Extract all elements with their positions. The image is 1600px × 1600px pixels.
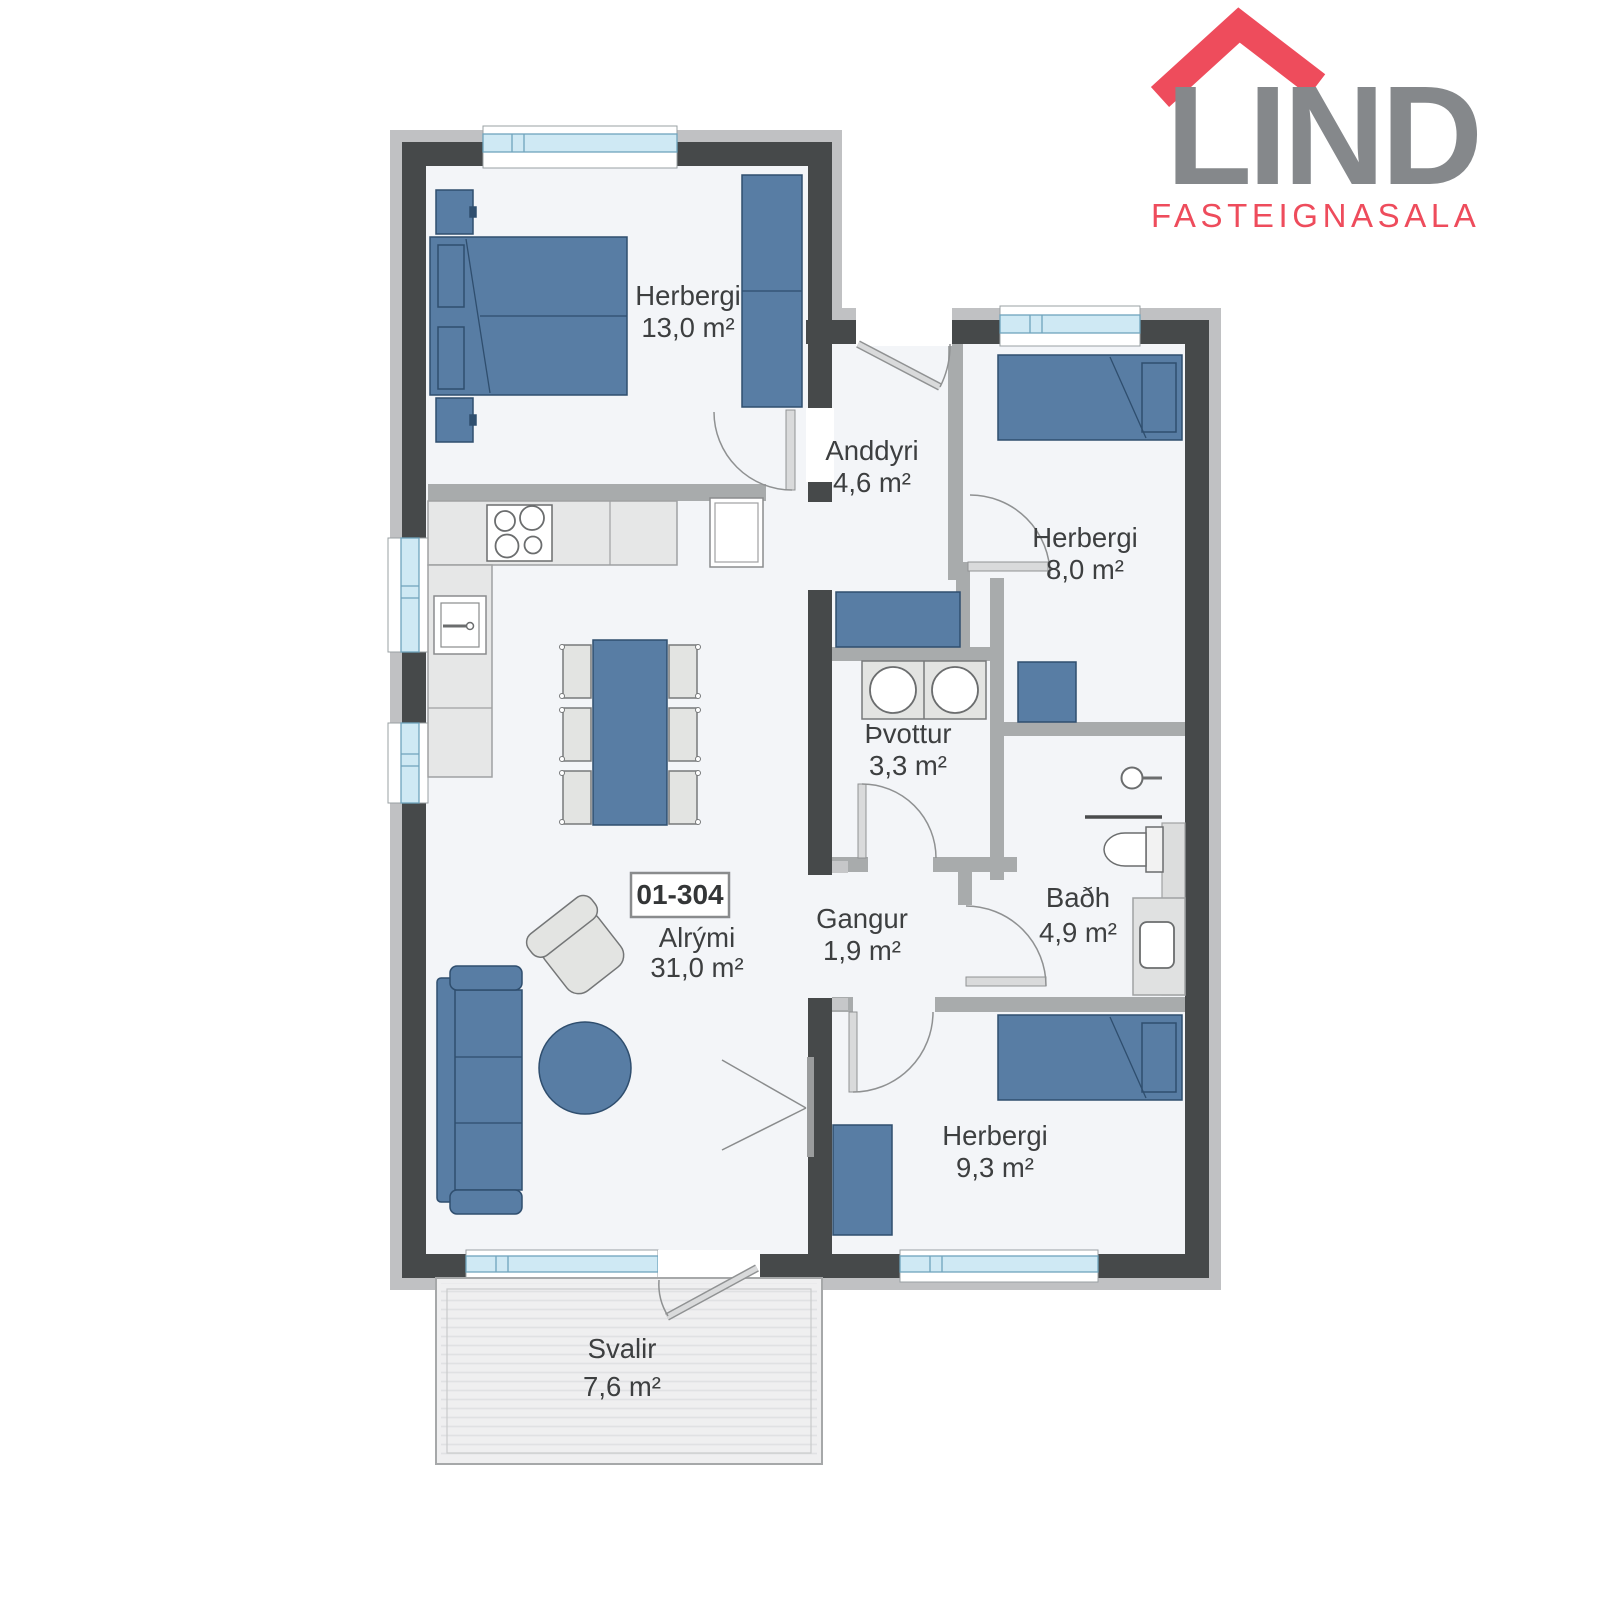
room-name: Svalir bbox=[588, 1333, 657, 1364]
room-area: 8,0 m² bbox=[1046, 554, 1124, 585]
washer-dryer bbox=[862, 661, 986, 719]
room-area: 4,6 m² bbox=[833, 467, 911, 498]
single-bed-9 bbox=[998, 1015, 1182, 1100]
room-name: Baðh bbox=[1046, 882, 1110, 913]
floor-plan-page: Herbergi 13,0 m² Anddyri 4,6 m² Herbergi… bbox=[0, 0, 1600, 1600]
room-name: Herbergi bbox=[1032, 522, 1137, 553]
room-area: 9,3 m² bbox=[956, 1152, 1034, 1183]
kitchen-sink bbox=[434, 596, 486, 654]
logo-subtitle: FASTEIGNASALA bbox=[1151, 197, 1480, 234]
room-label-herbergi-9: Herbergi 9,3 m² bbox=[942, 1120, 1047, 1183]
room-name: Alrými bbox=[659, 922, 735, 953]
room-area: 1,9 m² bbox=[823, 935, 901, 966]
window-left-2 bbox=[388, 723, 428, 803]
room-name: Herbergi bbox=[635, 280, 740, 311]
dresser-9 bbox=[833, 1125, 892, 1235]
dining-set bbox=[560, 640, 701, 825]
double-bed bbox=[430, 237, 627, 395]
stove bbox=[487, 505, 552, 561]
room-area: 4,9 m² bbox=[1039, 917, 1117, 948]
unit-label: 01-304 bbox=[636, 879, 724, 910]
dining-table bbox=[593, 640, 667, 825]
room-name: Herbergi bbox=[942, 1120, 1047, 1151]
window-left-1 bbox=[388, 538, 428, 652]
room-name: Anddyri bbox=[825, 435, 918, 466]
room-area: 7,6 m² bbox=[583, 1371, 661, 1402]
ottoman-rug bbox=[539, 1022, 631, 1114]
room-label-gangur: Gangur 1,9 m² bbox=[816, 903, 908, 966]
window-herbergi13 bbox=[483, 126, 677, 168]
fridge bbox=[710, 498, 763, 567]
room-label-thvottur: Þvottur 3,3 m² bbox=[864, 718, 951, 781]
room-area: 3,3 m² bbox=[869, 750, 947, 781]
sofa bbox=[437, 966, 522, 1214]
window-herbergi9 bbox=[900, 1250, 1098, 1282]
wardrobe bbox=[742, 175, 802, 407]
room-area: 13,0 m² bbox=[641, 312, 734, 343]
room-name: Þvottur bbox=[864, 718, 951, 749]
dresser-8 bbox=[1018, 662, 1076, 722]
hall-closet bbox=[836, 592, 960, 647]
room-area: 31,0 m² bbox=[650, 952, 743, 983]
vanity-sink bbox=[1133, 898, 1185, 995]
logo: LIND FASTEIGNASALA bbox=[1151, 25, 1480, 234]
room-label-herbergi-8: Herbergi 8,0 m² bbox=[1032, 522, 1137, 585]
room-label-herbergi-13: Herbergi 13,0 m² bbox=[635, 280, 740, 343]
room-name: Gangur bbox=[816, 903, 908, 934]
single-bed-8 bbox=[998, 355, 1182, 440]
logo-brand: LIND bbox=[1166, 56, 1479, 214]
room-label-anddyri: Anddyri 4,6 m² bbox=[825, 435, 918, 498]
floor-plan-svg: Herbergi 13,0 m² Anddyri 4,6 m² Herbergi… bbox=[0, 0, 1600, 1600]
window-herbergi8 bbox=[1000, 306, 1140, 346]
